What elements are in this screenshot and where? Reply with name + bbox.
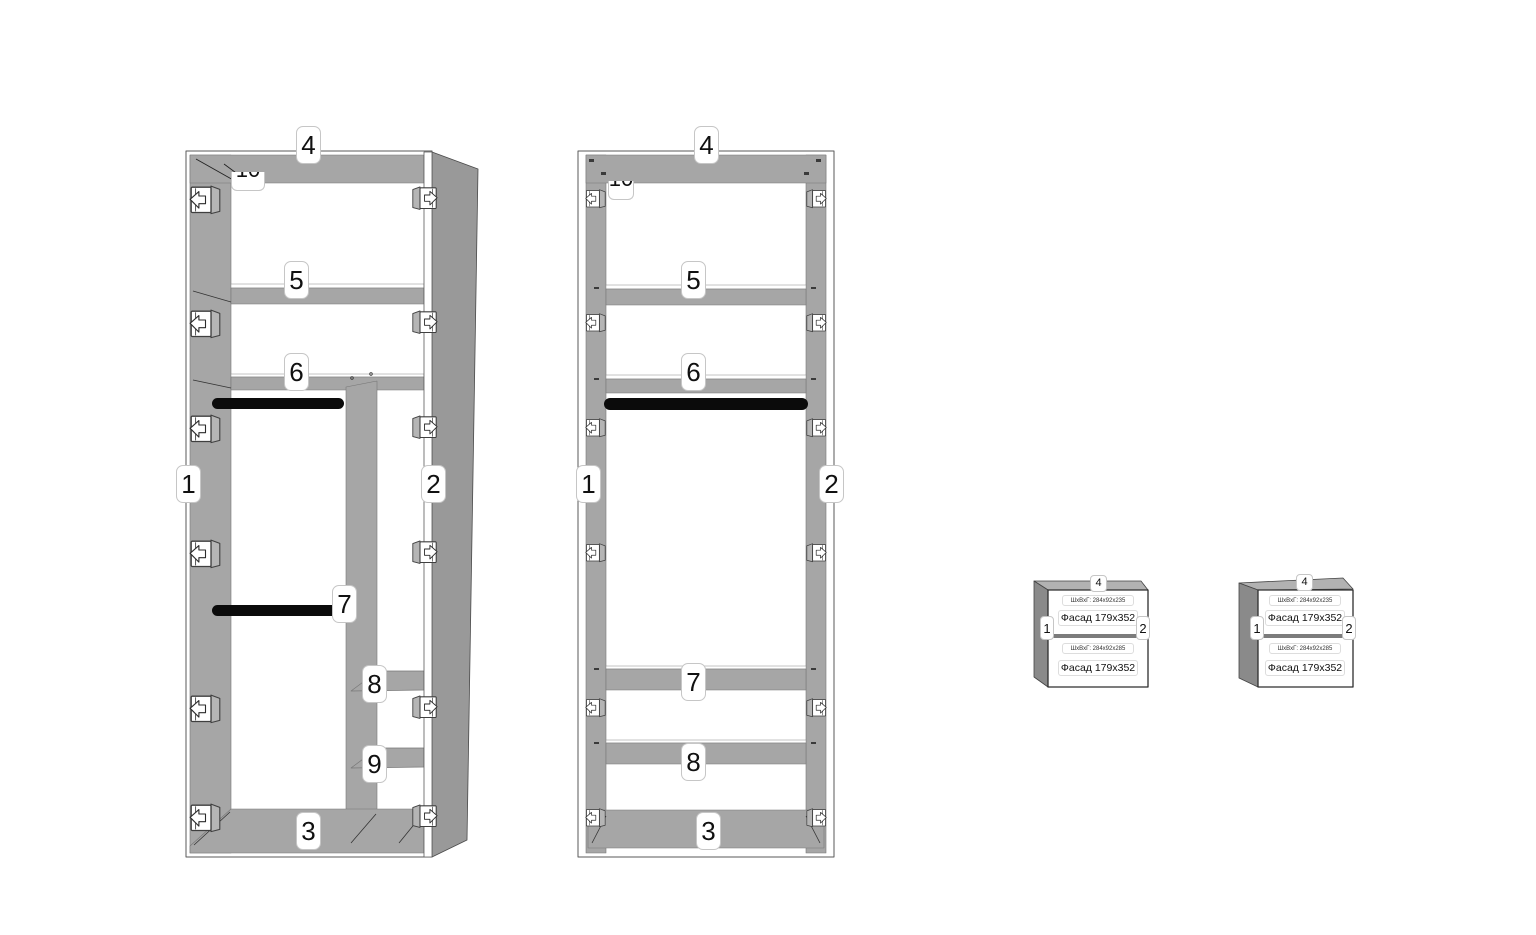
shelf-6-edge — [606, 375, 806, 379]
label-shelf-6-3d: 6 — [284, 353, 309, 391]
shelf-8 — [606, 743, 806, 764]
assembly-drawing — [0, 0, 1536, 935]
drawer-a-lower-facade: Фасад 179x352 — [1058, 660, 1138, 676]
shelf-8-edge — [606, 740, 806, 743]
left-side-panel — [190, 155, 231, 853]
label-side-left-3d: 1 — [176, 465, 201, 503]
label-bottom-panel-3d: 3 — [296, 812, 321, 850]
label-part-9-3d: 9 — [362, 745, 387, 783]
drawer-b-side-left-label: 1 — [1250, 616, 1264, 640]
drawer-a-lower-dimensions: ШхВхГ: 284x92x285 — [1062, 643, 1134, 654]
shelf-5-edge — [606, 285, 806, 289]
drawer-b-upper-dimensions: ШхВхГ: 284x92x235 — [1269, 595, 1341, 606]
label-side-right-3d: 2 — [421, 465, 446, 503]
label-back-panel-front-text: 10 — [609, 181, 633, 191]
label-top-panel-3d: 4 — [296, 126, 321, 164]
shelf-6 — [606, 379, 806, 393]
hanging-rod-lower — [212, 605, 344, 616]
cabinet-3d-view — [186, 151, 478, 857]
drawer-a-upper-facade: Фасад 179x352 — [1058, 610, 1138, 626]
shelf-6-edge — [231, 374, 424, 377]
label-part-8-3d: 8 — [362, 665, 387, 703]
label-part-7-3d: 7 — [332, 585, 357, 623]
shelf-5 — [231, 288, 424, 304]
label-part-7-front: 7 — [681, 663, 706, 701]
left-side-panel — [586, 155, 606, 853]
label-back-panel-3d-text: 10 — [236, 172, 260, 182]
drawer-a-side-left-label: 1 — [1040, 616, 1054, 640]
hanging-rod-upper — [212, 398, 344, 409]
label-back-panel-3d: 10 — [231, 172, 265, 191]
label-side-left-front: 1 — [576, 465, 601, 503]
label-side-right-front: 2 — [819, 465, 844, 503]
drawer-b-lower-dimensions: ШхВхГ: 284x92x285 — [1269, 643, 1341, 654]
drawer-a-top-label: 4 — [1090, 575, 1107, 592]
drawer-b-top-label: 4 — [1296, 574, 1313, 591]
label-shelf-5-3d: 5 — [284, 261, 309, 299]
drawer-b-upper-facade: Фасад 179x352 — [1265, 610, 1345, 626]
label-shelf-5-front: 5 — [681, 261, 706, 299]
hanging-rod — [604, 398, 808, 410]
shelf-5 — [606, 289, 806, 305]
assembly-diagram-canvas: 4 10 5 6 1 2 7 8 9 3 4 10 5 6 1 2 7 8 3 … — [0, 0, 1536, 935]
shelf-7 — [606, 669, 806, 690]
label-shelf-6-front: 6 — [681, 353, 706, 391]
cabinet-front-view — [578, 151, 834, 857]
label-back-panel-front: 10 — [608, 181, 634, 200]
front-right-edge — [424, 152, 432, 857]
label-part-8-front: 8 — [681, 743, 706, 781]
drawer-b-lower-facade: Фасад 179x352 — [1265, 660, 1345, 676]
shelf-7-edge — [606, 666, 806, 669]
shelf-5-edge — [231, 284, 424, 288]
label-bottom-panel-front: 3 — [696, 812, 721, 850]
label-top-panel-front: 4 — [694, 126, 719, 164]
drawer-b-side-right-label: 2 — [1342, 616, 1356, 640]
right-side-panel-3d — [432, 152, 478, 857]
drawer-a-side-right-label: 2 — [1136, 616, 1150, 640]
shelf-6 — [231, 377, 424, 390]
right-side-panel — [806, 155, 826, 853]
drawer-a-upper-dimensions: ШхВхГ: 284x92x235 — [1062, 595, 1134, 606]
